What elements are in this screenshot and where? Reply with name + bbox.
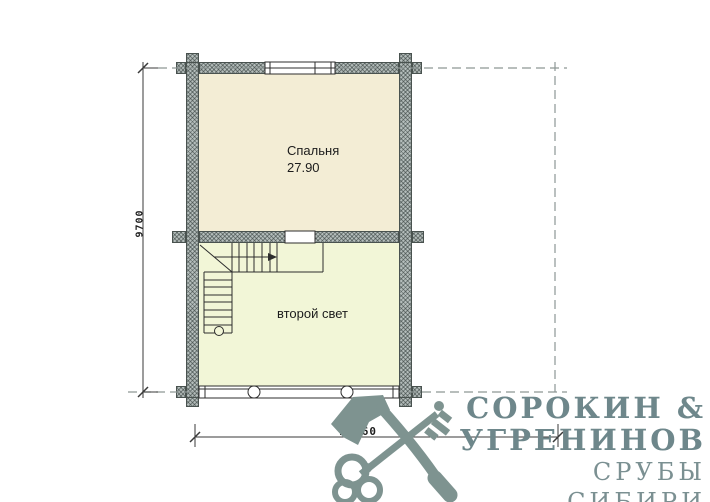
room-area: 27.90 [287,159,339,176]
log-end [172,231,186,243]
log-end [176,386,186,398]
logo-name-line2: УГРЕНИНОВ [448,424,706,456]
log-end [186,53,199,63]
room-name: Спальня [287,142,339,159]
logo-name-line1: СОРОКИН & [448,392,706,424]
log-end [186,397,199,407]
dim-tick [190,432,200,442]
logo-text: СОРОКИН & УГРЕНИНОВ СРУБЫ СИБИРИ [448,392,706,502]
dimension-height: 9700 [135,200,146,248]
room-name: второй свет [277,306,348,321]
wall-top [199,62,399,74]
log-end [412,231,424,243]
dim-tick [138,63,148,73]
log-end [176,62,186,74]
log-end [399,53,412,63]
wall-left [186,62,199,398]
wall-right [399,62,412,398]
wall-middle [199,231,399,243]
dim-tick [138,387,148,397]
floor-plan-canvas: Спальня 27.90 второй свет 9700 10760 [0,0,710,502]
room-label-second-light: второй свет [277,305,348,322]
room-label-bedroom: Спальня 27.90 [287,142,339,176]
logo-tagline: СРУБЫ СИБИРИ [448,457,706,502]
railing-post [248,386,260,398]
log-end [412,62,422,74]
